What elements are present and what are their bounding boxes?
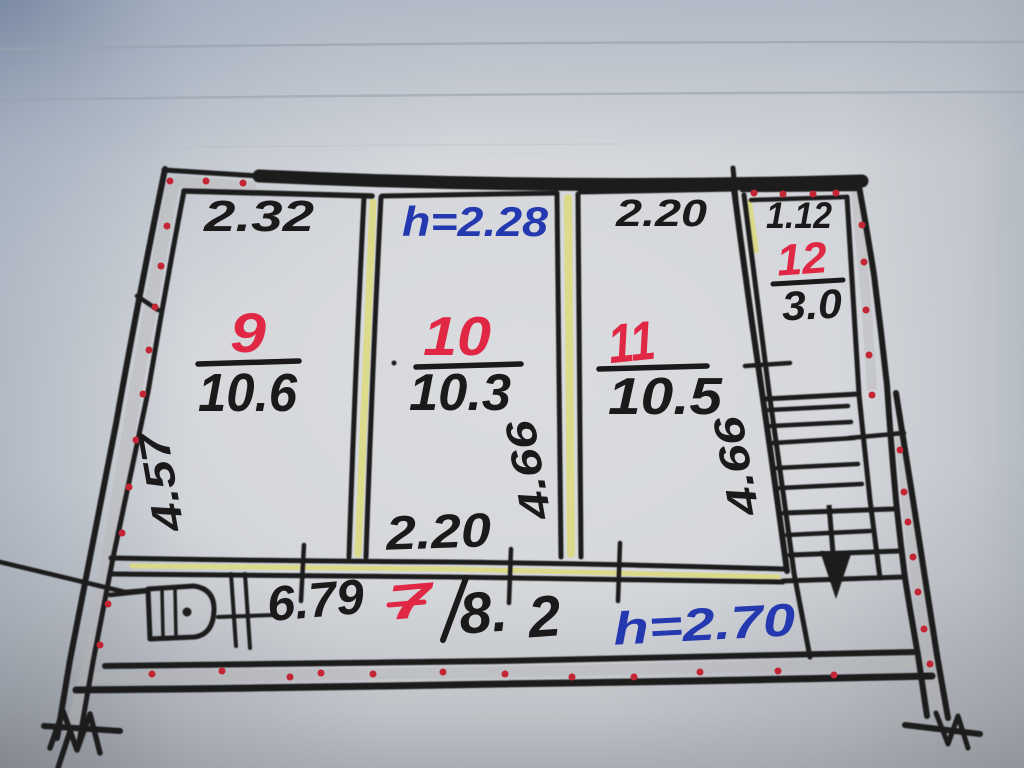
svg-text:6.79: 6.79 bbox=[265, 570, 367, 632]
svg-text:3.0: 3.0 bbox=[781, 280, 844, 329]
svg-text:10: 10 bbox=[423, 305, 491, 367]
svg-text:2.20: 2.20 bbox=[384, 504, 492, 561]
svg-text:8.: 8. bbox=[457, 579, 510, 647]
svg-text:10.3: 10.3 bbox=[409, 364, 511, 422]
svg-text:10.5: 10.5 bbox=[608, 368, 723, 426]
svg-text:2.32: 2.32 bbox=[203, 192, 315, 241]
svg-text:10.6: 10.6 bbox=[198, 363, 298, 423]
svg-text:1.12: 1.12 bbox=[766, 195, 832, 236]
svg-text:2.20: 2.20 bbox=[615, 193, 707, 235]
svg-text:12: 12 bbox=[775, 233, 829, 285]
svg-text:h=2.70: h=2.70 bbox=[612, 593, 797, 654]
svg-text:9: 9 bbox=[230, 301, 266, 364]
svg-text:h=2.28: h=2.28 bbox=[402, 198, 549, 245]
svg-text:2: 2 bbox=[525, 583, 563, 650]
